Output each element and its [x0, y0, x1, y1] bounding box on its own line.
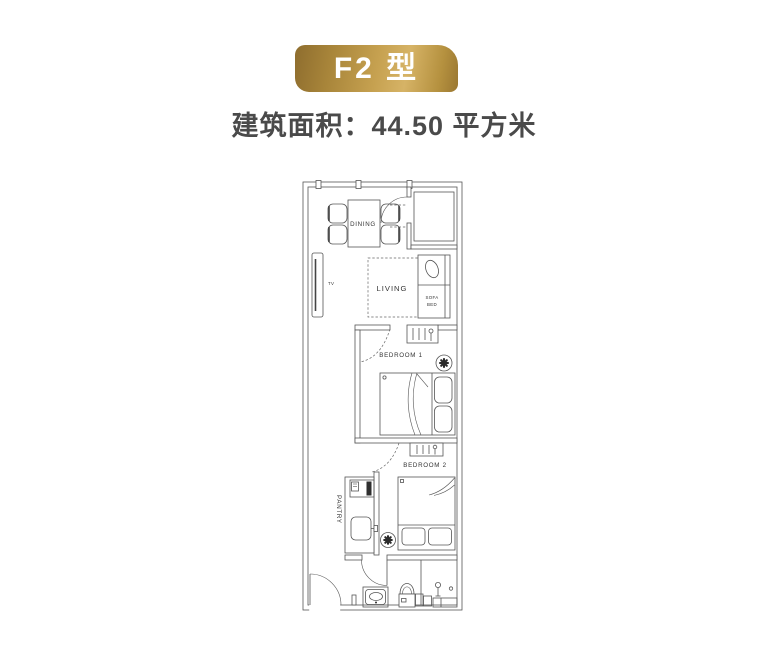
bed2-pillow	[429, 528, 452, 545]
entry-wall-lower	[407, 223, 411, 249]
shower-icon	[433, 582, 457, 607]
bedroom2-door-arc	[372, 443, 399, 472]
bed1-pillow	[435, 377, 453, 403]
plant-icon	[436, 355, 452, 371]
sofa-bed-label-1: SOFA	[426, 295, 439, 300]
living-area: LIVING	[368, 258, 423, 317]
sofa-bed-label-2: BED	[427, 302, 437, 307]
floorplan-svg: DINING TV LIVING SOFA BED	[295, 175, 470, 640]
tv-unit: TV	[312, 253, 334, 317]
living-label: LIVING	[377, 284, 408, 293]
entrance-door-arc	[310, 574, 341, 605]
closet-bottom-wall	[411, 245, 457, 249]
dining-chair	[381, 204, 400, 223]
toilet-bowl	[400, 584, 414, 595]
entrance-opening	[309, 604, 340, 612]
floor-area-subtitle: 建筑面积：44.50 平方米	[0, 104, 768, 143]
tv-cabinet	[312, 253, 323, 317]
plant-icon	[381, 533, 396, 548]
bath-cabinet	[424, 596, 432, 606]
window-mullion	[316, 181, 321, 189]
bathroom-wall-right	[387, 555, 457, 560]
pantry: PANTRY	[335, 477, 378, 553]
wardrobe-icon	[410, 443, 443, 456]
sink-faucet-handle	[374, 526, 378, 532]
window-mullion	[356, 181, 361, 189]
shower-drain	[449, 587, 452, 590]
wardrobe-icon	[407, 325, 438, 343]
bedroom1: BEDROOM 1	[360, 325, 455, 435]
bed-double-2	[398, 477, 455, 550]
dining-chair	[328, 225, 347, 244]
bedroom2-side-wall	[374, 472, 379, 555]
bed-double-1	[380, 373, 455, 435]
unit-type-label: F2 型	[334, 54, 419, 84]
main-entrance	[310, 574, 341, 605]
sofa-bed: SOFA BED	[418, 255, 450, 318]
entry-door-swing-arc	[381, 197, 407, 223]
shower-bench	[433, 598, 457, 607]
vanity-sink-icon	[363, 587, 388, 607]
bath-cabinet	[416, 594, 424, 606]
wardrobe-box	[410, 443, 443, 456]
entry-area	[381, 192, 454, 241]
bedroom1-label: BEDROOM 1	[379, 352, 422, 359]
dining-set: DINING	[328, 200, 400, 247]
bathroom	[362, 560, 458, 607]
entry-closet	[414, 192, 454, 241]
bedroom1-bottom-wall	[355, 438, 457, 443]
bedroom1-wall-left	[355, 325, 390, 330]
bedroom1-wall-right	[438, 325, 457, 330]
shower-head	[435, 582, 440, 587]
unit-type-badge: F2 型	[295, 45, 458, 92]
bed1-pillow	[435, 406, 453, 432]
bathroom-door-arc	[362, 560, 388, 586]
bed2-pillow	[402, 528, 425, 545]
wardrobe-box	[407, 325, 438, 343]
tv-label: TV	[328, 281, 334, 286]
entry-stub-wall	[352, 595, 356, 605]
toilet-icon	[399, 584, 415, 608]
bathroom-wall-left	[345, 555, 362, 560]
entry-wall-upper	[407, 187, 411, 197]
bedroom1-side-wall	[355, 330, 360, 443]
bedroom2-label: BEDROOM 2	[403, 462, 446, 469]
bedroom2: BEDROOM 2	[372, 443, 455, 550]
page: F2 型 建筑面积：44.50 平方米	[0, 0, 768, 664]
dining-chair	[328, 204, 347, 223]
dining-chair	[381, 225, 400, 244]
pantry-label: PANTRY	[335, 495, 342, 524]
dining-label: DINING	[350, 221, 376, 228]
